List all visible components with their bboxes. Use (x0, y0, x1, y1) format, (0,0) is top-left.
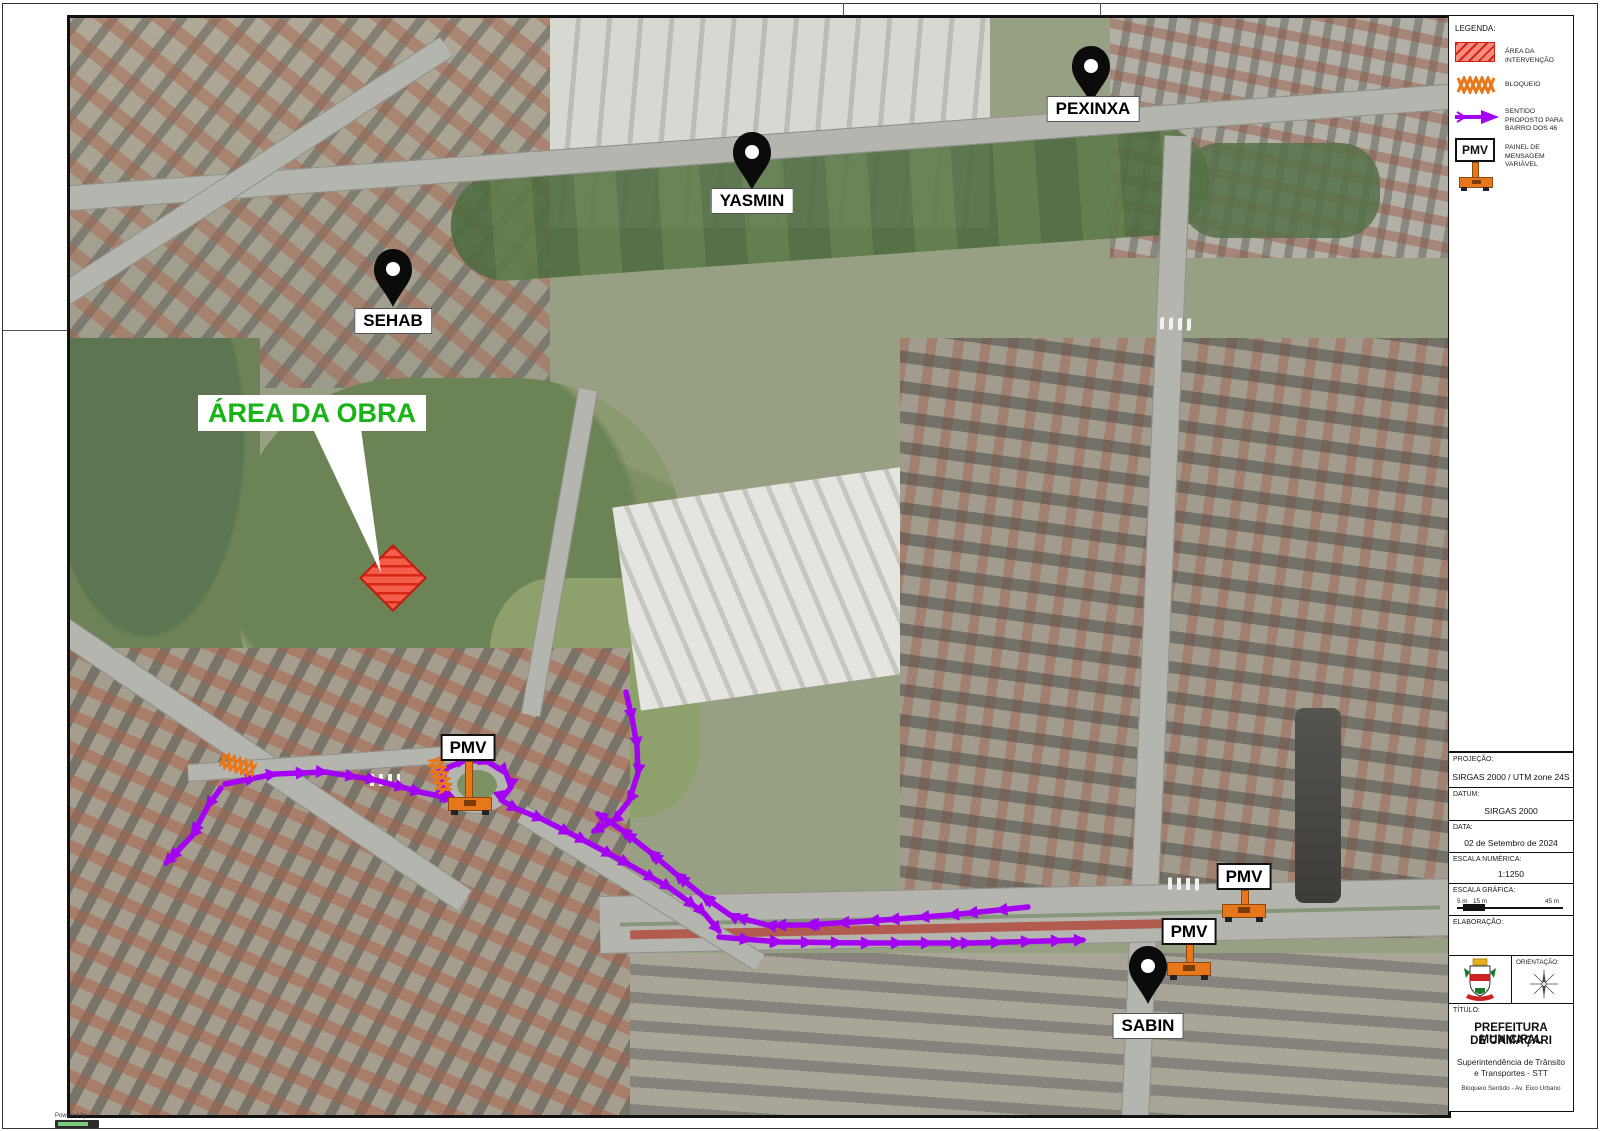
legend-title: LEGENDA: (1455, 24, 1495, 33)
datum-value: SIRGAS 2000 (1449, 806, 1573, 816)
subtitle-line-3: Bloqueio Sentido - Av. Eixo Urbano (1449, 1085, 1573, 1092)
legend-item-label: ÁREA DA INTERVENÇÃO (1505, 48, 1569, 65)
legend-item-blockade: BLOQUEIO (1455, 76, 1569, 98)
pmv-base (1167, 962, 1211, 976)
blockade-swatch (1455, 76, 1497, 94)
pmv-marker-label: PMV (1217, 863, 1272, 890)
pmv-swatch: PMV (1455, 138, 1495, 190)
datum-label: DATUM: (1453, 791, 1479, 798)
date-value: 02 de Setembro de 2024 (1449, 838, 1573, 848)
graphic-scale-box: ESCALA GRÁFICA: 5 m 15 m 45 m (1448, 883, 1574, 916)
map-pin-sabin (1126, 945, 1170, 1005)
area-intervention-swatch (1455, 42, 1495, 62)
date-box: DATA: 02 de Setembro de 2024 (1448, 820, 1574, 853)
pmv-post (465, 761, 473, 801)
map-pin-yasmin (730, 131, 774, 191)
pmv-marker-label: PMV (1162, 918, 1217, 945)
legend-item-direction: SENTIDO PROPOSTO PARA BAIRRO DOS 46 (1455, 108, 1569, 130)
pmv-base (448, 797, 492, 811)
route-west-approach (225, 772, 453, 799)
pmv-swatch-stand (1455, 162, 1495, 190)
projection-label: PROJEÇÃO: (1453, 756, 1493, 763)
route-west-exit (166, 788, 221, 863)
legend-item-area: ÁREA DA INTERVENÇÃO (1455, 42, 1569, 68)
route-eastbound-main (719, 937, 1083, 943)
imagery-logo (55, 1120, 99, 1128)
pin-label-pexinxa: PEXINXA (1047, 96, 1140, 122)
orientation-cell: ORIENTAÇÃO: (1512, 956, 1573, 1003)
elaboration-label: ELABORAÇÃO: (1453, 919, 1503, 926)
legend-item-label: SENTIDO PROPOSTO PARA BAIRRO DOS 46 (1505, 108, 1569, 134)
projection-box: PROJEÇÃO: SIRGAS 2000 / UTM zone 24S (1448, 752, 1574, 788)
pin-label-sehab: SEHAB (354, 308, 432, 334)
numeric-scale-label: ESCALA NUMÉRICA: (1453, 856, 1521, 863)
title-line-2: DE CAMAÇARI (1449, 1035, 1573, 1047)
numeric-scale-box: ESCALA NUMÉRICA: 1:1250 (1448, 852, 1574, 884)
crest-cell (1449, 956, 1512, 1003)
map-canvas: ÁREA DA OBRA PEXINXA YASMIN SEHAB SABIN … (67, 15, 1451, 1118)
projection-value: SIRGAS 2000 / UTM zone 24S (1449, 772, 1573, 782)
plan-sheet: ÁREA DA OBRA PEXINXA YASMIN SEHAB SABIN … (0, 0, 1600, 1131)
pmv-base (1222, 904, 1266, 918)
grid-tick-top-1 (843, 3, 844, 15)
grid-tick-top-2 (1100, 3, 1101, 15)
attribution-text: Powered by (55, 1113, 87, 1119)
graphic-scale-label: ESCALA GRÁFICA: (1453, 887, 1515, 894)
subtitle-line-1: Superintendência de Trânsito (1449, 1057, 1573, 1067)
work-area-label: ÁREA DA OBRA (198, 395, 426, 431)
compass-icon (1529, 969, 1559, 999)
scale-bar (1457, 907, 1563, 909)
scale-tick-45m: 45 m (1545, 898, 1559, 905)
legend-item-label: PAINEL DE MENSAGEM VARIÁVEL (1505, 144, 1569, 170)
legend-item-label: BLOQUEIO (1505, 81, 1569, 90)
datum-box: DATUM: SIRGAS 2000 (1448, 787, 1574, 821)
title-label: TÍTULO: (1453, 1007, 1480, 1014)
pmv-swatch-box: PMV (1455, 138, 1495, 162)
pin-label-sabin: SABIN (1113, 1013, 1184, 1039)
legend-item-pmv: PMV PAINEL DE MENSAGEM VARIÁVEL (1455, 138, 1569, 196)
elaboration-box: ELABORAÇÃO: (1448, 915, 1574, 956)
map-pin-sehab (371, 248, 415, 308)
work-area-callout (310, 429, 386, 575)
grid-tick-left-1 (3, 330, 67, 331)
route-westbound-main (598, 814, 1028, 925)
direction-arrow-swatch (1455, 110, 1499, 124)
pin-label-yasmin: YASMIN (711, 188, 794, 214)
imagery-attribution: Powered by (55, 1113, 99, 1128)
pmv-marker-label: PMV (441, 734, 496, 761)
route-north-descent (594, 692, 638, 831)
legend-panel: LEGENDA: ÁREA DA INTERVENÇÃO BLOQUEIO SE… (1448, 15, 1574, 752)
orientation-label: ORIENTAÇÃO: (1516, 959, 1559, 966)
subtitle-line-2: e Transportes - STT (1449, 1068, 1573, 1078)
numeric-scale-value: 1:1250 (1449, 869, 1573, 879)
crest-orientation-box: ORIENTAÇÃO: (1448, 955, 1574, 1004)
camacari-crest (1462, 958, 1498, 1002)
title-block: TÍTULO: PREFEITURA MUNICIPAL DE CAMAÇARI… (1448, 1003, 1574, 1112)
date-label: DATA: (1453, 824, 1473, 831)
